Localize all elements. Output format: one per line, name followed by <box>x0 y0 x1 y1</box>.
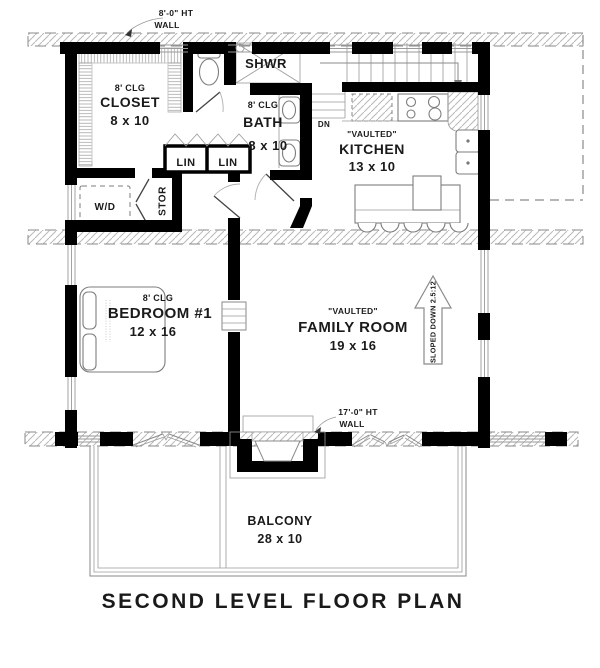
family-room-name-label: FAMILY ROOM <box>298 319 408 336</box>
family-room-note-label: "VAULTED" <box>328 306 378 316</box>
kitchen-size-label: 13 x 10 <box>349 159 396 174</box>
lower-wall-height-line1: 17'-0" HT <box>338 407 378 417</box>
kitchen-name-label: KITCHEN <box>339 141 405 157</box>
pillow <box>83 292 96 329</box>
closet-ceiling-label: 8' CLG <box>115 83 145 93</box>
bath-bottom-wall <box>270 170 312 180</box>
page-title: SECOND LEVEL FLOOR PLAN <box>102 590 465 613</box>
closet-size-label: 8 x 10 <box>110 113 149 128</box>
storage-label: STOR <box>158 186 169 216</box>
bath-kitchen-wall <box>300 83 312 170</box>
floor-plan-drawing: SLOPED DOWN 2.5:12 8'-0" HT WALL 17'-0" … <box>0 0 600 668</box>
bedroom-ceiling-label: 8' CLG <box>143 293 173 303</box>
slope-arrow-label: SLOPED DOWN 2.5:12 <box>429 281 438 363</box>
laundry-label: W/D <box>95 202 116 213</box>
kitchen-sink <box>456 130 480 174</box>
pillow <box>83 334 96 370</box>
shower-label: SHWR <box>245 56 287 71</box>
linen-left-label: LIN <box>176 157 195 169</box>
floor-plan-page: SLOPED DOWN 2.5:12 8'-0" HT WALL 17'-0" … <box>0 0 600 668</box>
family-room-size-label: 19 x 16 <box>330 338 377 353</box>
lower-wall-height-line2: WALL <box>339 419 364 429</box>
bath-name-label: BATH <box>243 114 283 130</box>
kitchen-note-label: "VAULTED" <box>347 129 397 139</box>
upper-wall-height-line2: WALL <box>154 20 179 30</box>
bedroom-size-label: 12 x 16 <box>130 324 177 339</box>
upper-wall-height-line1: 8'-0" HT <box>159 8 194 18</box>
balcony-name-label: BALCONY <box>247 514 312 528</box>
wc-shower-wall <box>224 42 236 85</box>
balcony-size-label: 28 x 10 <box>257 532 302 546</box>
closet-wall <box>183 42 193 112</box>
pocket-door-symbol <box>222 302 246 330</box>
stairs-dn-label: DN <box>318 120 330 129</box>
bedroom-name-label: BEDROOM #1 <box>108 305 212 322</box>
cooktop <box>398 94 448 121</box>
bath-size-label: 8 x 10 <box>248 138 287 153</box>
linen-right-label: LIN <box>218 157 237 169</box>
stair-kitchen-wall <box>342 82 478 92</box>
closet-name-label: CLOSET <box>100 94 160 110</box>
corner-counter <box>448 92 478 132</box>
bath-ceiling-label: 8' CLG <box>248 100 278 110</box>
refrigerator-space <box>352 94 392 121</box>
